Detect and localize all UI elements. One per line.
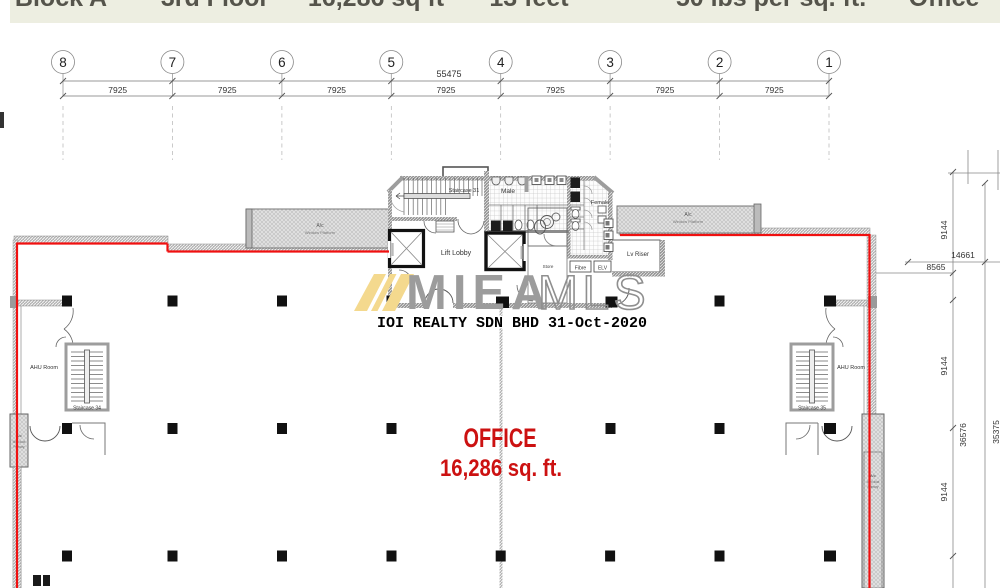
svg-text:MLS: MLS: [538, 267, 650, 320]
svg-text:7925: 7925: [765, 85, 784, 95]
svg-text:Staircase 31: Staircase 31: [449, 188, 480, 194]
svg-text:Female: Female: [591, 200, 609, 206]
svg-text:Window Platform: Window Platform: [673, 219, 704, 224]
svg-text:8565: 8565: [927, 262, 946, 272]
svg-text:9144: 9144: [939, 220, 949, 239]
svg-text:A/c: A/c: [870, 473, 876, 478]
svg-text:16,286 sq. ft.: 16,286 sq. ft.: [440, 455, 562, 482]
svg-text:Office: Office: [909, 0, 980, 12]
svg-text:7: 7: [169, 55, 177, 70]
svg-text:7925: 7925: [218, 85, 237, 95]
svg-text:50 lbs per sq. ft.: 50 lbs per sq. ft.: [676, 0, 866, 12]
svg-text:4: 4: [497, 55, 505, 70]
svg-text:Staircase 34: Staircase 34: [73, 406, 101, 412]
svg-text:Lift Lobby: Lift Lobby: [441, 250, 472, 257]
svg-text:7925: 7925: [327, 85, 346, 95]
svg-text:MIEA: MIEA: [406, 266, 553, 320]
svg-text:AHU Room: AHU Room: [837, 365, 865, 371]
svg-text:14661: 14661: [951, 250, 975, 260]
svg-text:A/c: A/c: [316, 223, 324, 229]
svg-text:7925: 7925: [655, 85, 674, 95]
svg-text:36576: 36576: [958, 423, 968, 447]
svg-text:5: 5: [388, 55, 396, 70]
svg-text:1: 1: [825, 55, 833, 70]
svg-text:2: 2: [716, 55, 724, 70]
svg-text:AHU Room: AHU Room: [30, 365, 58, 371]
svg-text:9144: 9144: [939, 482, 949, 501]
svg-text:Lv Riser: Lv Riser: [627, 252, 649, 258]
svg-text:Staircase 35: Staircase 35: [798, 406, 826, 412]
svg-text:3rd Floor: 3rd Floor: [161, 0, 270, 12]
svg-text:7925: 7925: [437, 85, 456, 95]
svg-text:13 feet: 13 feet: [489, 0, 569, 12]
svg-text:A/c: A/c: [684, 212, 692, 218]
svg-text:7925: 7925: [108, 85, 127, 95]
svg-text:Block A: Block A: [15, 0, 107, 12]
svg-text:7925: 7925: [546, 85, 565, 95]
svg-text:16,286 sq ft: 16,286 sq ft: [308, 0, 445, 12]
svg-text:55475: 55475: [436, 69, 461, 79]
svg-text:IOI REALTY SDN BHD 31-Oct-2020: IOI REALTY SDN BHD 31-Oct-2020: [377, 315, 647, 332]
svg-text:8: 8: [59, 55, 67, 70]
svg-text:Window Platform: Window Platform: [305, 230, 336, 235]
svg-text:Male: Male: [501, 188, 515, 195]
svg-text:35375: 35375: [991, 420, 1000, 444]
svg-text:3: 3: [606, 55, 614, 70]
svg-text:OFFICE: OFFICE: [464, 423, 537, 453]
svg-text:6: 6: [278, 55, 286, 70]
svg-text:9144: 9144: [939, 356, 949, 375]
svg-text:Mini duct: Mini duct: [13, 440, 26, 444]
svg-text:Primary: Primary: [14, 445, 25, 449]
